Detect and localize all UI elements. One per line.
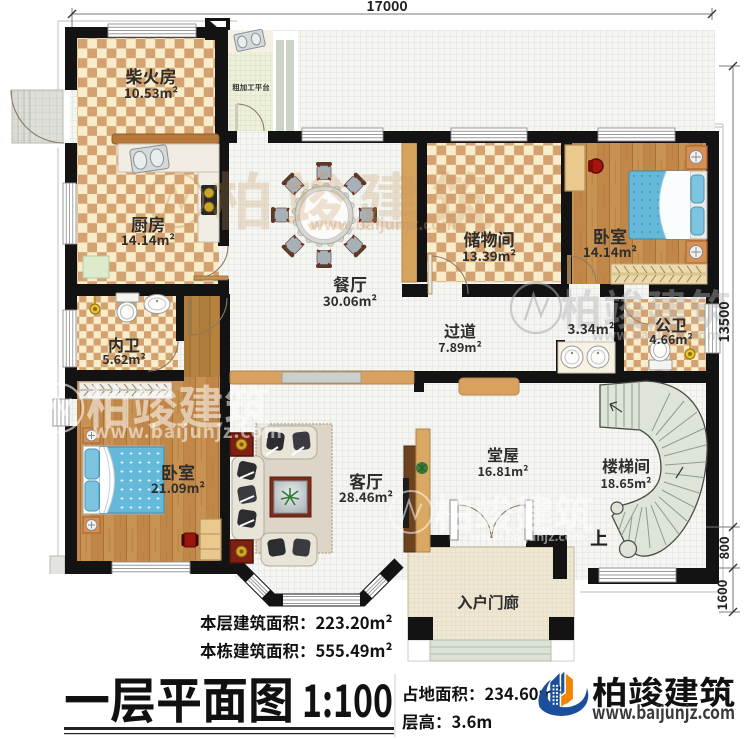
svg-text:17000: 17000 [366, 0, 407, 16]
svg-text:上: 上 [590, 525, 608, 551]
svg-text:5.62m²: 5.62m² [102, 349, 146, 368]
svg-text:14.14m²: 14.14m² [583, 242, 637, 261]
svg-text:占地面积：234.60m²: 占地面积：234.60m² [402, 681, 561, 705]
svg-text:层高：3.6m: 层高：3.6m [402, 709, 492, 733]
svg-text:本层建筑面积：223.20m²: 本层建筑面积：223.20m² [200, 610, 392, 634]
svg-text:800: 800 [714, 536, 733, 559]
svg-text:1:100: 1:100 [302, 665, 393, 730]
svg-text:www.baijunjz.com: www.baijunjz.com [592, 698, 735, 725]
svg-text:4.66m²: 4.66m² [649, 329, 693, 348]
svg-text:13.39m²: 13.39m² [462, 246, 516, 265]
svg-text:30.06m²: 30.06m² [323, 291, 377, 310]
svg-text:16.81m²: 16.81m² [478, 461, 529, 480]
svg-text:粗加工平台: 粗加工平台 [232, 82, 270, 93]
svg-text:28.46m²: 28.46m² [339, 487, 393, 506]
svg-text:本栋建筑面积：555.49m²: 本栋建筑面积：555.49m² [200, 638, 392, 662]
svg-text:1600: 1600 [712, 579, 731, 610]
svg-text:一层平面图: 一层平面图 [64, 662, 294, 733]
svg-text:13500: 13500 [714, 301, 734, 342]
svg-text:18.65m²: 18.65m² [601, 473, 652, 492]
svg-text:21.09m²: 21.09m² [151, 478, 205, 497]
svg-text:3.34m²: 3.34m² [567, 318, 614, 338]
svg-text:www.baijunjz.com: www.baijunjz.com [93, 417, 283, 444]
svg-text:7.89m²: 7.89m² [438, 337, 482, 356]
svg-text:www.baijunjz.com: www.baijunjz.com [310, 211, 457, 235]
svg-text:10.53m²: 10.53m² [124, 83, 178, 102]
svg-text:www.baijunjz.com: www.baijunjz.com [470, 526, 584, 545]
svg-text:14.14m²: 14.14m² [121, 230, 175, 249]
svg-text:入户门廊: 入户门廊 [457, 591, 519, 613]
